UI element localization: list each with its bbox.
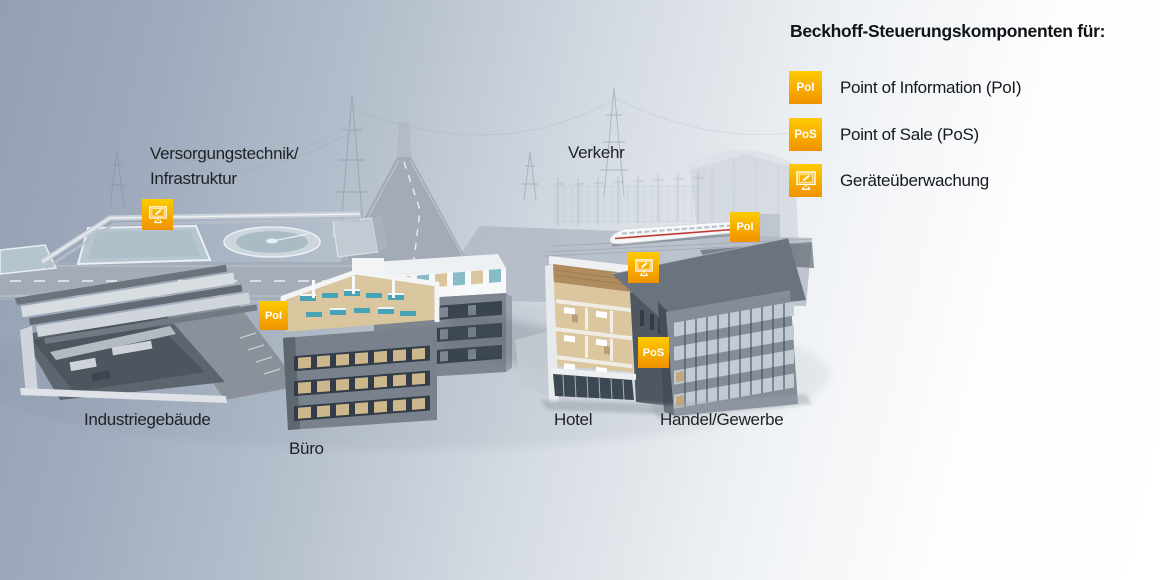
infographic-canvas: Versorgungstechnik/ Infrastruktur Verkeh… [0,0,1160,580]
poi-marker-label: PoI [736,221,753,233]
label-commerce: Handel/Gewerbe [660,407,783,432]
pos-badge: PoS [789,118,822,151]
label-industrial-building: Industriegebäude [84,407,211,432]
poi-marker-traffic: PoI [730,212,760,242]
monitor-icon-marker-hotel [628,252,659,283]
monitor-icon [634,258,654,277]
label-hotel: Hotel [554,407,592,432]
monitor-icon-badge [789,164,822,197]
legend-item-device-monitoring: Geräteüberwachung [789,164,989,197]
poi-badge-label: PoI [797,82,815,94]
monitor-icon [148,205,168,224]
legend-label-poi: Point of Information (PoI) [840,78,1021,98]
label-infrastructure-line2: Infrastruktur [150,166,298,191]
label-infrastructure: Versorgungstechnik/ Infrastruktur [150,141,298,191]
pos-badge-label: PoS [794,129,816,141]
poi-marker-label: PoI [265,310,282,322]
poi-badge: PoI [789,71,822,104]
poi-marker-office: PoI [259,301,288,330]
monitor-icon-marker-infrastructure [142,199,173,230]
label-infrastructure-line1: Versorgungstechnik/ [150,141,298,166]
monitor-icon [795,170,817,191]
label-traffic: Verkehr [568,140,625,165]
legend-item-pos: PoS Point of Sale (PoS) [789,118,979,151]
pos-marker-commerce: PoS [638,337,669,368]
legend-label-device-monitoring: Geräteüberwachung [840,171,989,191]
legend-item-poi: PoI Point of Information (PoI) [789,71,1021,104]
legend-label-pos: Point of Sale (PoS) [840,125,979,145]
label-office: Büro [289,436,324,461]
pos-marker-label: PoS [643,347,664,359]
legend-title: Beckhoff-Steuerungskomponenten für: [790,21,1105,42]
